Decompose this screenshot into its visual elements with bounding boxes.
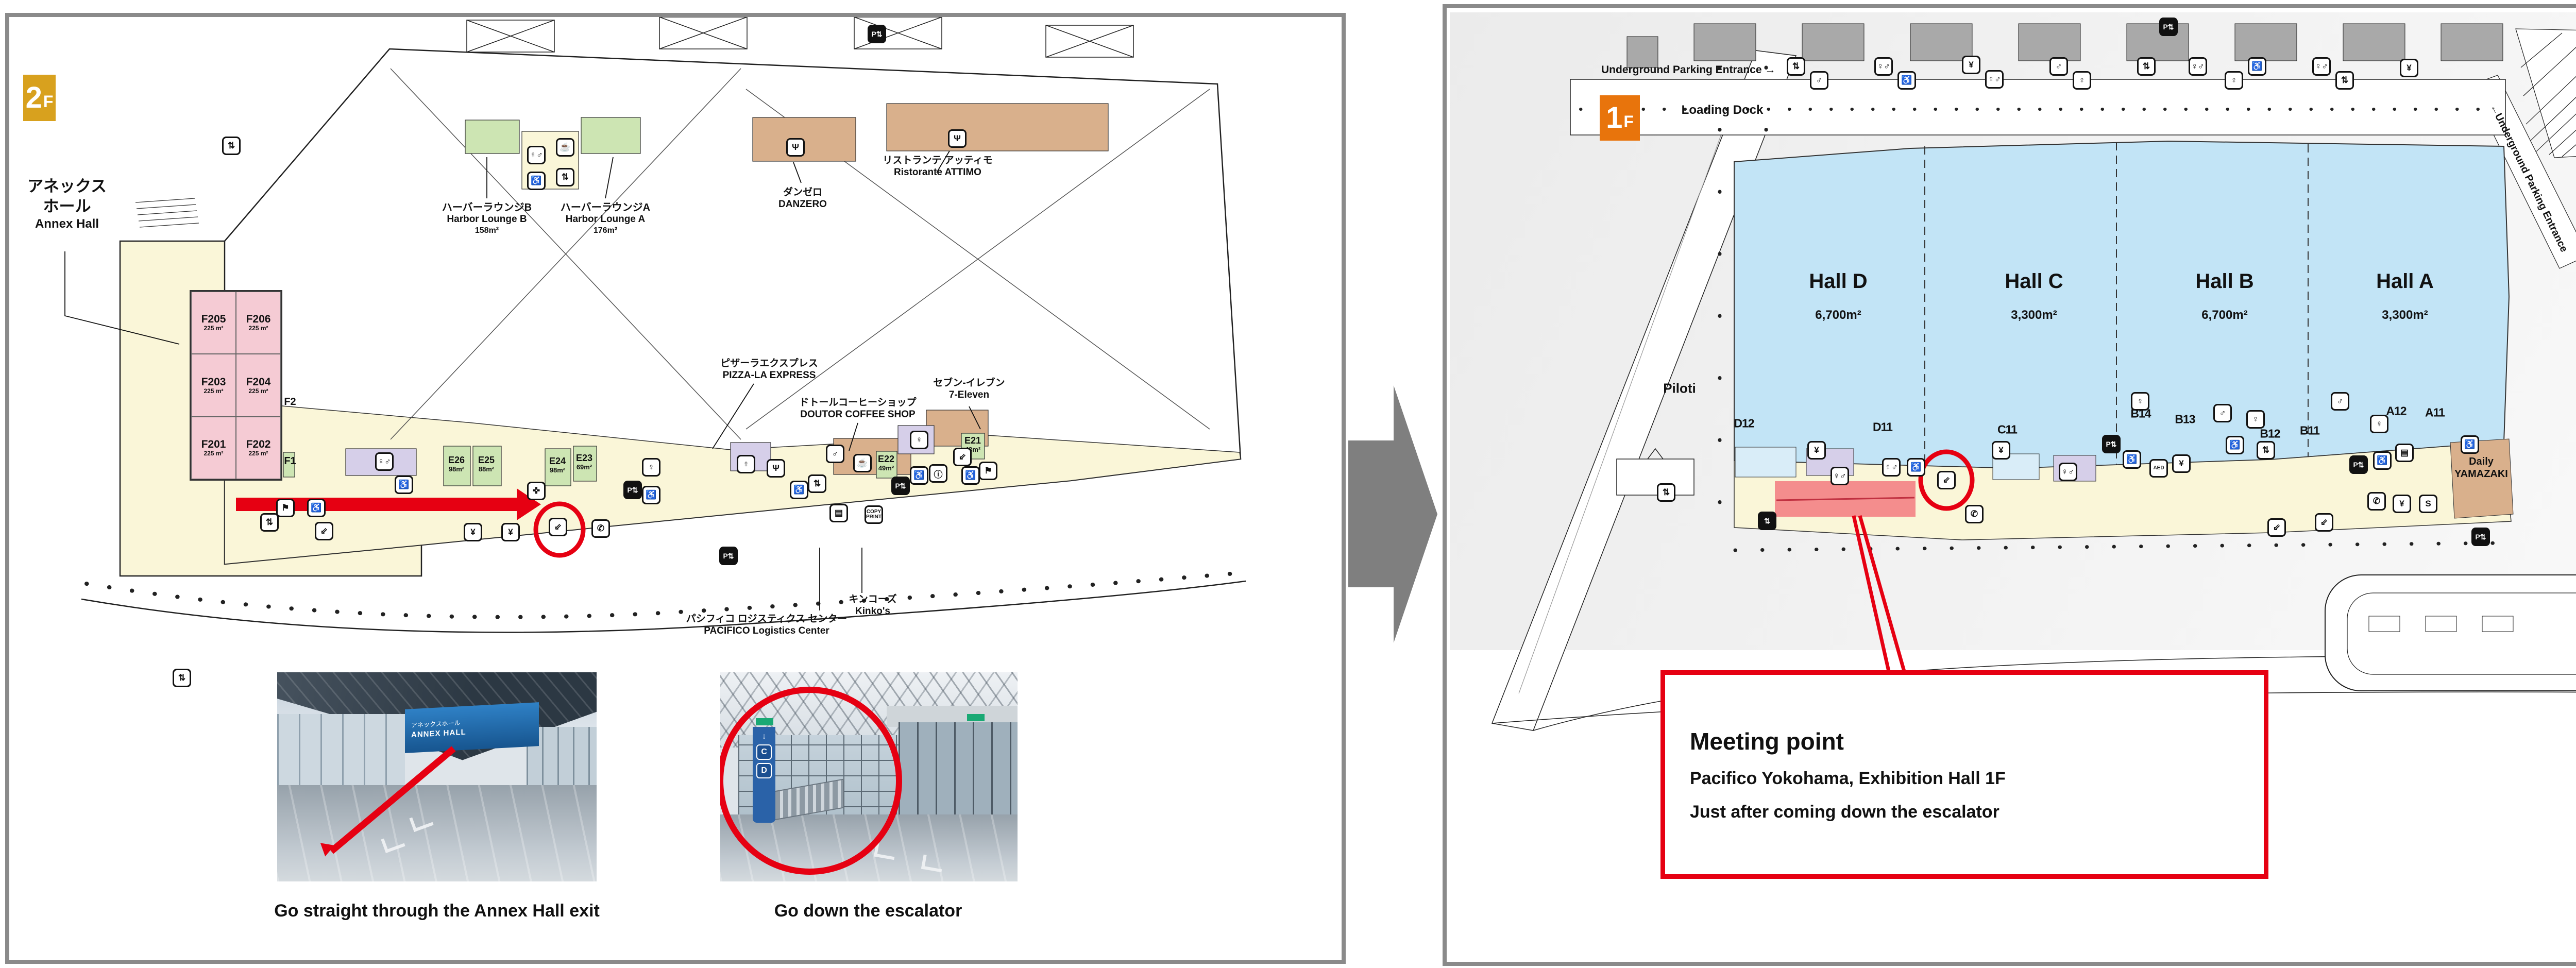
escalator-icon: ⇙ <box>315 522 333 540</box>
wheelchair-icon: ♿ <box>961 466 980 485</box>
elevator-icon: ⇅ <box>1787 57 1805 76</box>
elevator-icon: ⇅ <box>260 513 279 532</box>
wheelchair-icon: ♿ <box>307 499 326 517</box>
man-icon: ♂ <box>2213 404 2232 422</box>
info-icon: ⓘ <box>929 464 947 483</box>
transition-arrow <box>1348 440 1394 587</box>
escalator-circle-annotation <box>720 687 902 875</box>
elevator-icon: ⇅ <box>1758 512 1776 530</box>
phone-icon: ✆ <box>591 519 610 538</box>
restroom-icon: ♀♂ <box>2189 57 2207 76</box>
photo-floor <box>277 785 597 881</box>
woman-icon: ♀ <box>910 431 928 449</box>
truck-icon: ▤ <box>829 504 848 522</box>
woman-icon: ♀ <box>2073 71 2091 90</box>
photo-annex-exit: アネックスホール ANNEX HALL <box>277 672 597 881</box>
woman-icon: ♀ <box>737 455 755 473</box>
restroom-icon: ♀♂ <box>527 146 546 164</box>
restroom-icon: ♀♂ <box>2312 57 2331 76</box>
elevator-icon: ⇅ <box>556 168 574 186</box>
woman-icon: ♀ <box>2246 410 2265 429</box>
exit-sign <box>967 714 985 721</box>
coin-locker-icon: ▤ <box>2395 444 2414 462</box>
man-icon: ♂ <box>2049 57 2068 76</box>
photo-doors <box>899 722 1018 827</box>
parking-elevator-icon: P⇅ <box>2159 18 2178 36</box>
elevator-icon: ⇅ <box>222 137 241 155</box>
vending-icon: ¥ <box>464 523 482 541</box>
woman-icon: ♀ <box>2131 392 2149 411</box>
photo2-caption: Go down the escalator <box>774 901 962 921</box>
elevator-icon: ⇅ <box>808 474 826 493</box>
icons-2f: P⇅⇅♀♂♿☕⇅ΨΨ♀♂♿⚑♿⇅⇙✜¥¥⇙✆P⇅♿♀♀Ψ♿⇅♂☕♀♿ⓘP⇅⇙♿⚑… <box>9 17 1342 960</box>
escalator-icon: ⇙ <box>1937 471 1956 489</box>
elevator-icon: ⇅ <box>1657 483 1675 502</box>
escalator-icon: ⇙ <box>953 448 972 466</box>
parking-elevator-icon: P⇅ <box>623 481 642 499</box>
wheelchair-icon: ♿ <box>527 172 546 190</box>
vending-icon: ¥ <box>2393 495 2411 513</box>
parking-elevator-icon: P⇅ <box>2471 528 2490 546</box>
AED-icon: AED <box>2149 459 2168 478</box>
wheelchair-icon: ♿ <box>790 481 808 499</box>
man-icon: ♂ <box>826 445 844 463</box>
phone-icon: ✆ <box>1965 505 1984 523</box>
escalator-icon: ⇙ <box>2315 513 2333 532</box>
meeting-point-line2: Just after coming down the escalator <box>1690 802 2264 822</box>
vending-icon: ¥ <box>1992 441 2010 460</box>
vending-icon: ¥ <box>501 523 520 541</box>
vending-icon: ¥ <box>1962 56 1980 74</box>
restaurant-icon: Ψ <box>767 459 785 478</box>
wheelchair-icon: ♿ <box>2373 451 2392 470</box>
restroom-icon: ♀♂ <box>375 452 394 471</box>
restroom-icon: ♀♂ <box>1831 467 1849 485</box>
restroom-icon: ♀♂ <box>1882 458 1901 477</box>
vending-icon: ¥ <box>2400 59 2418 77</box>
elevator-icon: ⇅ <box>2137 57 2156 76</box>
lounge-pantry-icon: ☕ <box>556 138 574 157</box>
wheelchair-icon: ♿ <box>1897 71 1916 90</box>
restroom-icon: ♀♂ <box>2059 463 2077 481</box>
wheelchair-icon: ♿ <box>2226 436 2244 454</box>
restaurant-icon: Ψ <box>948 129 967 148</box>
wheelchair-icon: ♿ <box>2123 450 2141 469</box>
man-icon: ♂ <box>2331 392 2349 411</box>
wheelchair-icon: ♿ <box>1907 458 1925 477</box>
photo1-caption: Go straight through the Annex Hall exit <box>274 901 600 921</box>
restroom-icon: ♀♂ <box>1874 57 1893 76</box>
wheelchair-icon: ♿ <box>2461 435 2479 454</box>
vending-icon: ¥ <box>2172 454 2191 473</box>
meeting-point-box: Meeting point Pacifico Yokohama, Exhibit… <box>1660 670 2268 879</box>
parking-elevator-icon: P⇅ <box>2102 435 2121 453</box>
transition-arrow-head <box>1394 385 1437 643</box>
phone-icon: ✆ <box>2367 492 2386 511</box>
meeting-point-title: Meeting point <box>1690 727 2264 755</box>
woman-icon: ♀ <box>2225 71 2243 90</box>
cloakroom-icon: ⚑ <box>979 462 997 480</box>
cloakroom-icon: ⚑ <box>276 499 295 517</box>
copy-print-icon: COPY PRINT <box>865 505 883 524</box>
panel-1f: 1 F Underground Parking Entrance → Loadi… <box>1443 4 2576 966</box>
parking-elevator-icon: P⇅ <box>719 547 738 565</box>
escalator-icon: ⇙ <box>2267 518 2286 537</box>
wheelchair-icon: ♿ <box>910 466 928 485</box>
vending-icon: ¥ <box>1807 441 1826 460</box>
elevator-icon: ⇅ <box>173 669 191 687</box>
annex-hall-sign: アネックスホール ANNEX HALL <box>405 702 539 753</box>
coffee-icon: ☕ <box>853 454 872 472</box>
elevator-icon: ⇅ <box>2335 71 2354 90</box>
meeting-point-line1: Pacifico Yokohama, Exhibition Hall 1F <box>1690 769 2264 789</box>
nursing-icon: ✜ <box>527 482 546 500</box>
woman-icon: ♀ <box>2370 415 2388 433</box>
photo-escalator: ↓ C D <box>720 672 1018 881</box>
restaurant-icon: Ψ <box>786 138 805 157</box>
wheelchair-icon: ♿ <box>642 486 660 504</box>
man-icon: ♂ <box>1810 71 1828 90</box>
parking-elevator-icon: P⇅ <box>891 477 910 495</box>
restroom-icon: ♀♂ <box>1985 70 2004 89</box>
guide-sheet: 2 F アネックス ホール Annex Hall F205225 m² F206… <box>0 0 2576 968</box>
panel-2f: 2 F アネックス ホール Annex Hall F205225 m² F206… <box>5 13 1346 964</box>
woman-icon: ♀ <box>642 458 660 477</box>
parking-elevator-icon: P⇅ <box>2349 455 2368 474</box>
wheelchair-icon: ♿ <box>395 475 413 494</box>
parking-elevator-icon: P⇅ <box>868 25 886 43</box>
wheelchair-icon: ♿ <box>2248 57 2266 76</box>
escalator-icon: ⇙ <box>549 518 567 536</box>
smoking-icon: S <box>2419 495 2437 513</box>
elevator-icon: ⇅ <box>2257 441 2275 460</box>
